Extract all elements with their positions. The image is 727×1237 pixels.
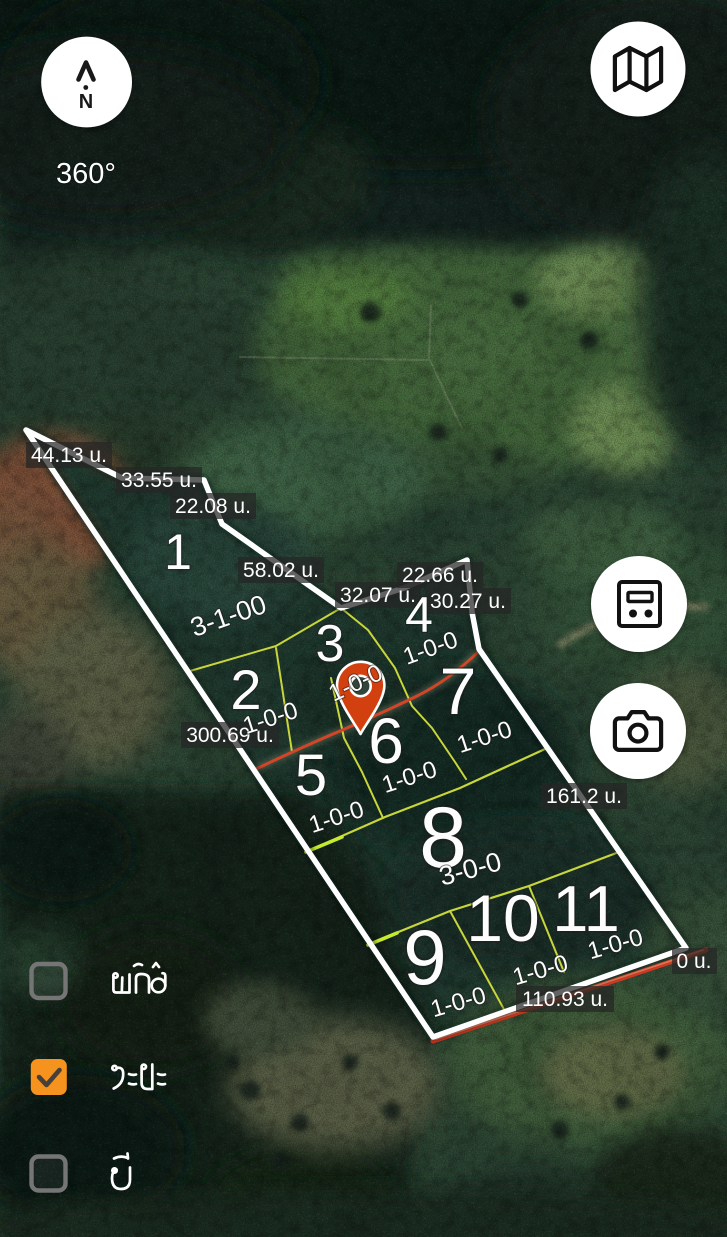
svg-text:33.55 u.: 33.55 u.: [121, 469, 197, 492]
svg-text:0 u.: 0 u.: [676, 950, 711, 973]
svg-text:44.13 u.: 44.13 u.: [31, 444, 107, 467]
svg-text:22.08 u.: 22.08 u.: [175, 495, 251, 518]
svg-text:1: 1: [164, 524, 192, 580]
svg-text:360°: 360°: [56, 158, 116, 190]
svg-text:N: N: [79, 91, 93, 113]
svg-text:3: 3: [316, 615, 345, 673]
svg-text:30.27 u.: 30.27 u.: [430, 590, 506, 613]
svg-text:22.66 u.: 22.66 u.: [402, 564, 478, 587]
svg-text:161.2 u.: 161.2 u.: [546, 785, 622, 808]
svg-text:10: 10: [466, 881, 539, 955]
svg-text:7: 7: [440, 654, 477, 728]
svg-text:5: 5: [295, 743, 327, 808]
svg-text:58.02 u.: 58.02 u.: [243, 559, 319, 582]
svg-text:9: 9: [403, 913, 446, 1001]
svg-text:110.93 u.: 110.93 u.: [522, 988, 608, 1011]
